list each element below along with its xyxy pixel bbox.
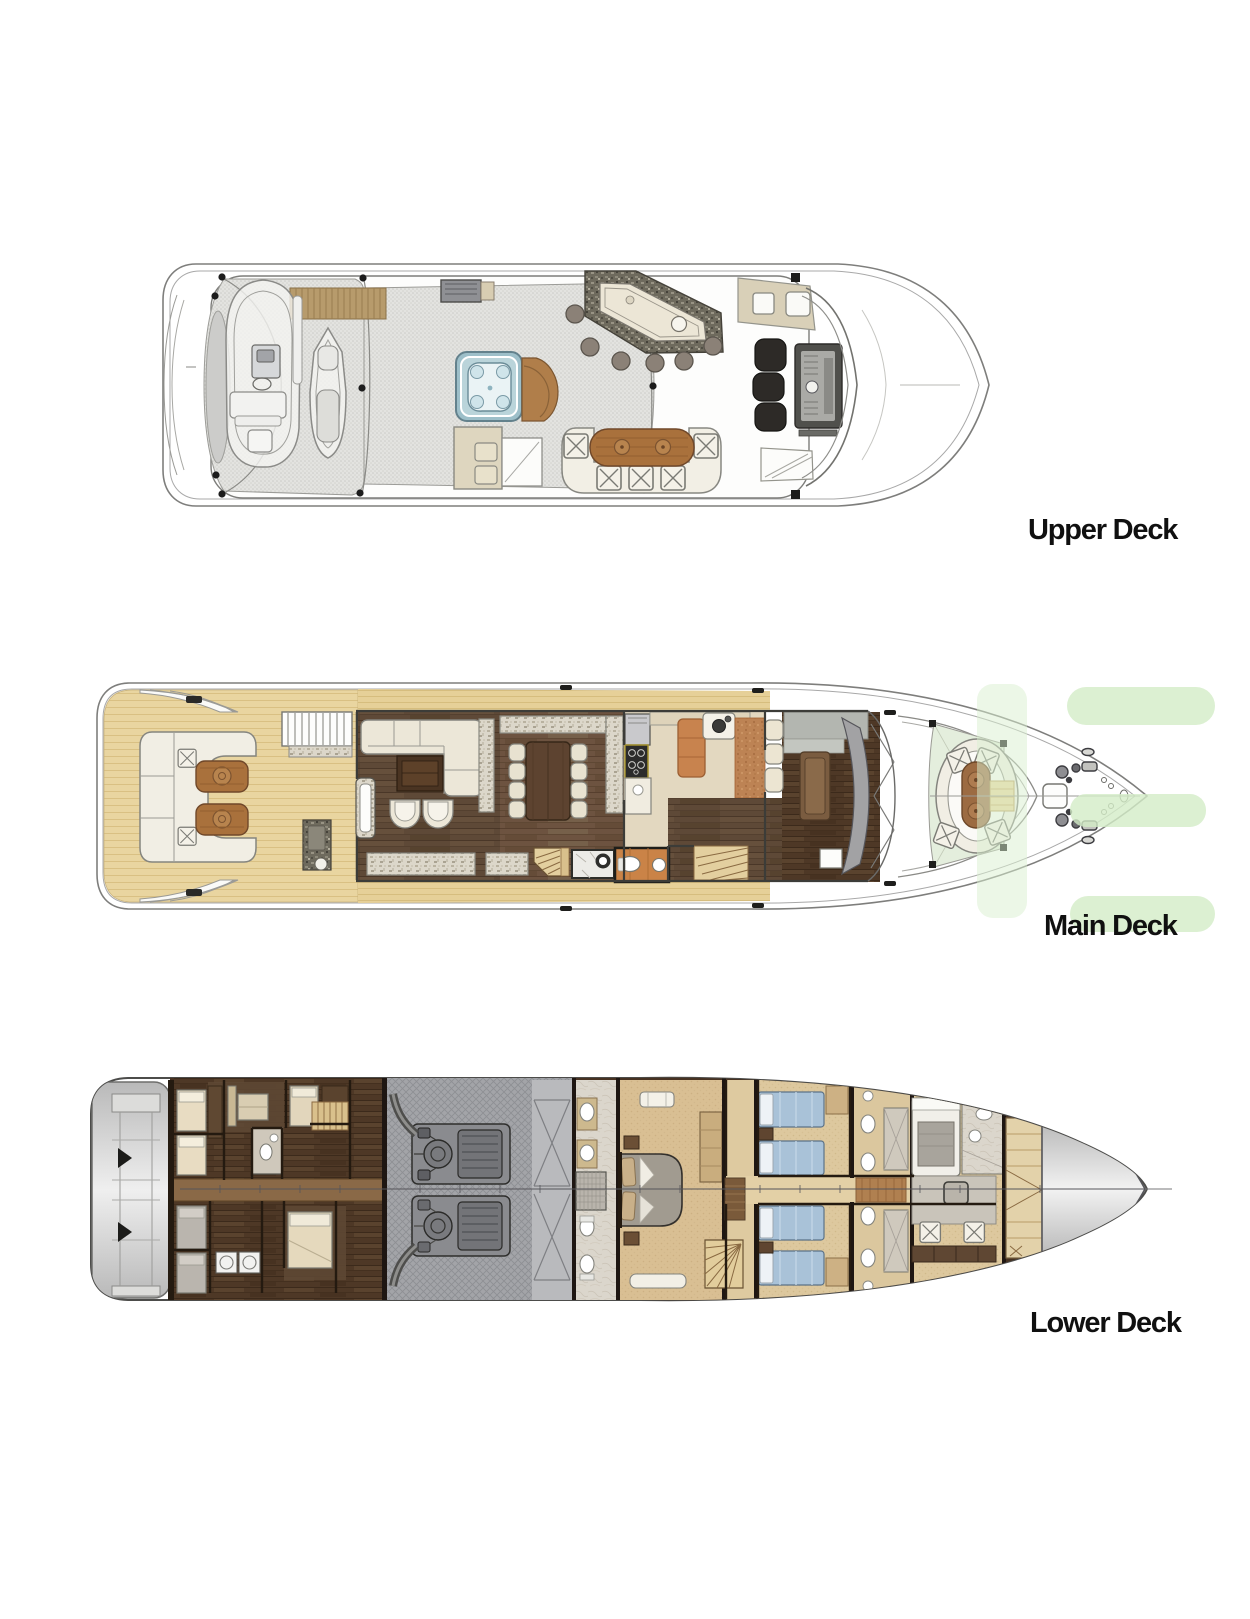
- svg-text:Lower Deck: Lower Deck: [1030, 1307, 1183, 1339]
- svg-text:Main Deck: Main Deck: [1044, 910, 1179, 942]
- svg-text:Upper Deck: Upper Deck: [1028, 514, 1179, 546]
